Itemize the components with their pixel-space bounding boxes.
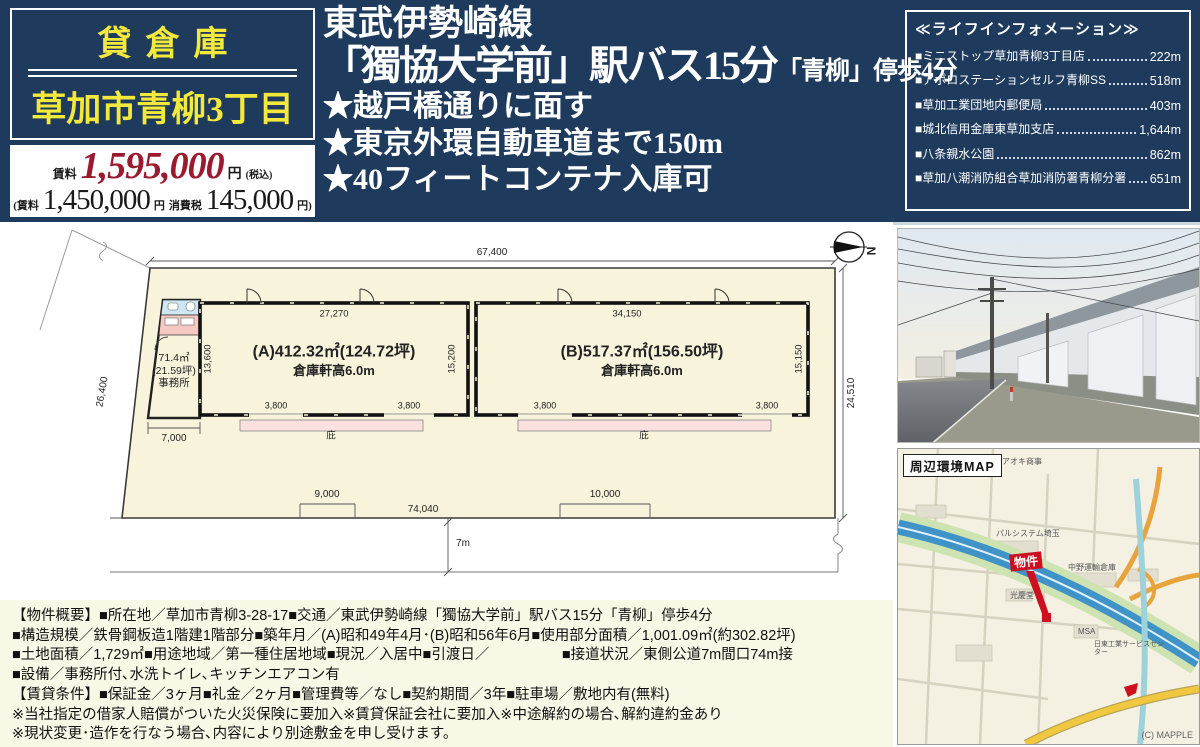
exterior-photo-art — [898, 229, 1199, 442]
feature-line: ★越戸橋通りに面す — [323, 89, 898, 126]
price-unit: 円 — [228, 167, 242, 182]
price-tax: 145,000 — [206, 184, 293, 216]
site-dim-right: 24,510 — [846, 378, 858, 409]
price-detail-open: (賃料 — [13, 200, 39, 212]
bldgB-canopy-label: 庇 — [639, 430, 649, 441]
dotted-leader — [1045, 108, 1146, 110]
dim-7000: 7,000 — [161, 433, 186, 445]
bldgA-title: (A)412.32㎡(124.72坪) — [253, 342, 416, 361]
price-base-unit: 円 — [154, 200, 165, 212]
station-access: 「獨協大学前」駅バス15分「青柳」停歩4分 — [323, 44, 898, 89]
list-item: ■城北信用金庫東草加支店 1,644m — [915, 120, 1181, 137]
bldgB-door1: 3,800 — [534, 401, 557, 412]
north-indicator: N — [864, 247, 878, 256]
dotted-leader — [1057, 132, 1136, 134]
price-tax-label: 消費税 — [169, 200, 202, 212]
life-information-box: ≪ライフインフォメーション≫ ■ミニストップ草加青柳3丁目店 222m ■アポロ… — [905, 10, 1191, 211]
facility-name: ■草加工業団地内郵便局 — [915, 96, 1042, 113]
bldgB-dim-right: 15,150 — [793, 344, 804, 373]
life-information-title: ≪ライフインフォメーション≫ — [915, 18, 1181, 39]
facility-name: ■八条親水公園 — [915, 145, 994, 162]
map-place-label: 光慶堂 — [1010, 591, 1034, 600]
page-title: 草加市青柳3丁目 — [12, 81, 313, 132]
overview-line: ※当社指定の借家人賠償がついた火災保険に要加入※賃貸保証会社に要加入※中途解約の… — [12, 706, 883, 726]
site-plan: 67,400 26,400 24,510 74,040 9,000 10,000… — [0, 222, 893, 600]
bldgB-height: 倉庫軒高6.0m — [601, 363, 683, 379]
bldgA-canopy-label: 庇 — [326, 430, 336, 441]
price-label: 賃料 — [53, 167, 77, 181]
overview-line: 【物件概要】■所在地／草加市青柳3-28-17■交通／東武伊勢崎線「獨協大学前」… — [12, 607, 883, 627]
office-block-label: 71.4㎡ (21.59坪) 事務所 — [152, 352, 196, 390]
facility-distance: 1,644m — [1139, 123, 1181, 137]
property-badge: 貸倉庫 草加市青柳3丁目 賃料 1,595,000 円 (税込) (賃料 1,4… — [10, 8, 315, 217]
list-item: ■アポロステーションセルフ青柳SS 518m — [915, 71, 1181, 88]
bldgA-door2: 3,800 — [398, 401, 421, 412]
overview-line: ■設備／事務所付､水洗トイレ､キッチンエアコン有 — [12, 666, 883, 686]
facility-distance: 862m — [1150, 148, 1181, 162]
facility-distance: 651m — [1150, 172, 1181, 186]
price-tax-unit: 円) — [297, 200, 312, 212]
price-amount: 1,595,000 — [81, 145, 224, 187]
facility-name: ■草加八潮消防組合草加消防署青柳分署 — [915, 169, 1126, 186]
property-overview: 【物件概要】■所在地／草加市青柳3-28-17■交通／東武伊勢崎線「獨協大学前」… — [0, 600, 893, 747]
header-band: 貸倉庫 草加市青柳3丁目 賃料 1,595,000 円 (税込) (賃料 1,4… — [0, 0, 1200, 225]
map-place-label: パルシステム埼玉 — [996, 529, 1060, 538]
list-item: ■八条親水公園 862m — [915, 145, 1181, 162]
office-name: 事務所 — [152, 377, 196, 390]
badge-type-label: 貸倉庫 — [12, 16, 313, 65]
map-place-label: 中野運輸倉庫 — [1068, 563, 1116, 572]
facility-name: ■ミニストップ草加青柳3丁目店 — [915, 47, 1085, 64]
map-place-label: 日東工業サービスセンター — [1094, 641, 1164, 657]
office-area: 71.4㎡ — [152, 352, 196, 365]
dim-9000: 9,000 — [314, 489, 339, 501]
dotted-leader — [997, 157, 1146, 159]
exterior-photo — [897, 228, 1200, 443]
price-tax-note: (税込) — [246, 170, 273, 181]
headline-block: 東武伊勢崎線 「獨協大学前」駅バス15分「青柳」停歩4分 ★越戸橋通りに面す ★… — [323, 4, 898, 199]
overview-line: 【賃貸条件】■保証金／3ヶ月■礼金／2ヶ月■管理費等／なし■契約期間／3年■駐車… — [12, 686, 883, 706]
site-dim-bottom: 74,040 — [408, 504, 439, 516]
overview-line: ※現状変更･造作を行なう場合､内容により別途敷金を申し受けます。 — [12, 725, 883, 745]
bldgB-door2: 3,800 — [756, 401, 779, 412]
list-item: ■草加八潮消防組合草加消防署青柳分署 651m — [915, 169, 1181, 186]
facility-distance: 222m — [1150, 50, 1181, 64]
station-access-main: 「獨協大学前」駅バス15分 — [323, 43, 777, 88]
site-dim-top: 67,400 — [477, 247, 508, 259]
facility-name: ■アポロステーションセルフ青柳SS — [915, 71, 1106, 88]
bldgA-dim-right: 15,200 — [446, 344, 457, 373]
property-marker: 物件 — [1009, 551, 1043, 571]
dim-10000: 10,000 — [590, 489, 621, 501]
price-line-detail: (賃料 1,450,000 円 消費税 145,000 円) — [10, 186, 315, 215]
overview-line: ■構造規模／鉄骨鋼板造1階建1階部分■築年月／(A)昭和49年4月･(B)昭和5… — [12, 627, 883, 647]
feature-line: ★東京外環自動車道まで150m — [323, 126, 898, 163]
list-item: ■草加工業団地内郵便局 403m — [915, 96, 1181, 113]
facility-distance: 518m — [1150, 74, 1181, 88]
feature-line: ★40フィートコンテナ入庫可 — [323, 162, 898, 199]
price-base: 1,450,000 — [43, 184, 150, 216]
dotted-leader — [1129, 181, 1146, 183]
facility-distance: 403m — [1150, 99, 1181, 113]
area-map: 周辺環境MAP 物件 アオキ商事 パルシステム埼玉 中野運輸倉庫 光慶堂 MSA… — [897, 448, 1200, 745]
map-credit: (C) MAPPLE — [1141, 730, 1193, 740]
office-tsubo: (21.59坪) — [152, 365, 196, 378]
map-place-label: アオキ商事 — [1002, 457, 1042, 466]
facility-name: ■城北信用金庫東草加支店 — [915, 120, 1054, 137]
flyer-page: 貸倉庫 草加市青柳3丁目 賃料 1,595,000 円 (税込) (賃料 1,4… — [0, 0, 1200, 747]
area-map-art — [898, 449, 1199, 744]
dotted-leader — [1109, 83, 1147, 85]
dotted-leader — [1088, 59, 1147, 61]
bldgB-dim-top: 34,150 — [612, 308, 641, 319]
bldgA-dim-left: 13,600 — [202, 344, 213, 373]
bldgA-height: 倉庫軒高6.0m — [293, 363, 375, 379]
map-title: 周辺環境MAP — [903, 454, 1002, 477]
badge-divider — [28, 69, 297, 77]
bldgA-door1: 3,800 — [265, 401, 288, 412]
road-width-label: 7m — [456, 538, 470, 550]
map-place-label: MSA — [1078, 627, 1095, 636]
price-line-total: 賃料 1,595,000 円 (税込) — [10, 147, 315, 185]
railway-line: 東武伊勢崎線 — [323, 4, 898, 44]
overview-line: ■土地面積／1,729㎡■用途地域／第一種住居地域■現況／入居中■引渡日／ ■接… — [12, 646, 883, 666]
list-item: ■ミニストップ草加青柳3丁目店 222m — [915, 47, 1181, 64]
bldgB-title: (B)517.37㎡(156.50坪) — [561, 342, 724, 361]
badge-box: 貸倉庫 草加市青柳3丁目 — [10, 8, 315, 140]
bldgA-dim-top: 27,270 — [319, 308, 348, 319]
price-box: 賃料 1,595,000 円 (税込) (賃料 1,450,000 円 消費税 … — [10, 145, 315, 217]
